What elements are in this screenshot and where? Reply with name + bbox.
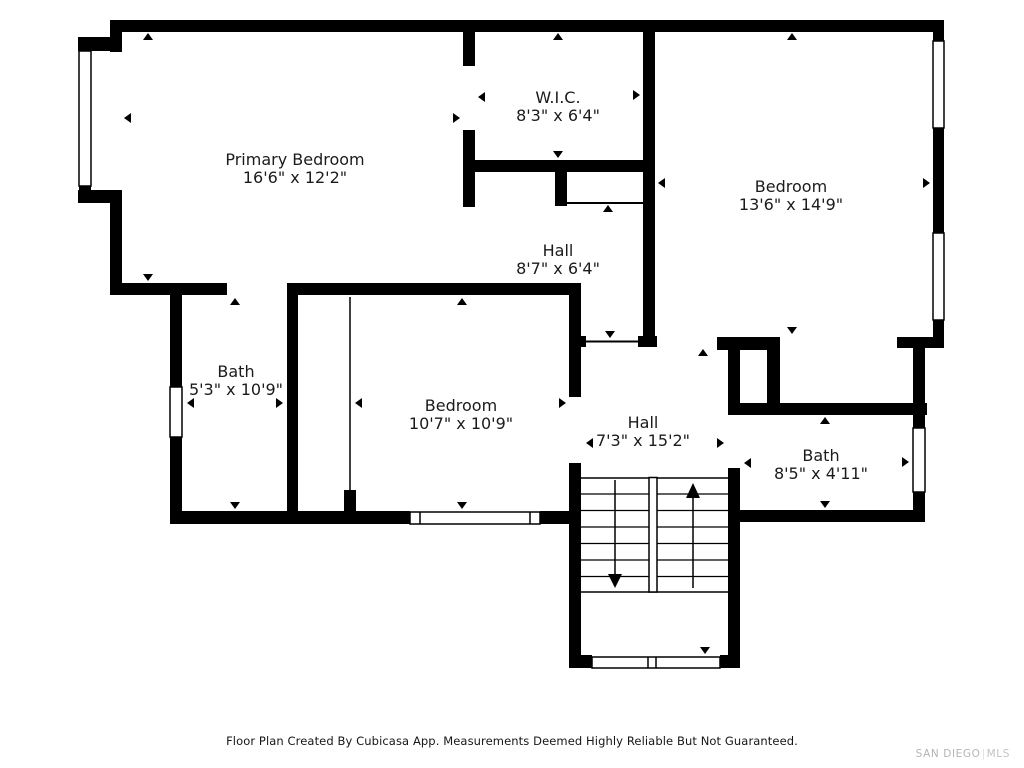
mls-watermark: SAN DIEGO|MLS	[916, 748, 1010, 760]
windows-group	[79, 41, 944, 668]
room-label-wic: W.I.C. 8'3" x 6'4"	[516, 89, 600, 125]
window	[79, 51, 91, 186]
room-name: Primary Bedroom	[225, 151, 364, 169]
room-dims: 8'3" x 6'4"	[516, 107, 600, 125]
room-name: Bath	[774, 447, 868, 465]
floor-plan-page: Primary Bedroom 16'6" x 12'2" W.I.C. 8'3…	[0, 0, 1024, 768]
disclaimer-text: Floor Plan Created By Cubicasa App. Meas…	[0, 734, 1024, 748]
room-label-hall-upper: Hall 8'7" x 6'4"	[516, 242, 600, 278]
watermark-secondary: MLS	[987, 748, 1010, 760]
floorplan-drawing	[0, 0, 1024, 768]
walls-group	[78, 20, 944, 668]
window	[933, 41, 944, 128]
dimension-ticks-group	[124, 33, 930, 654]
room-dims: 8'5" x 4'11"	[774, 465, 868, 483]
room-name: W.I.C.	[516, 89, 600, 107]
room-dims: 5'3" x 10'9"	[189, 381, 283, 399]
room-dims: 10'7" x 10'9"	[409, 415, 513, 433]
room-name: Hall	[596, 414, 690, 432]
room-label-bedroom-right: Bedroom 13'6" x 14'9"	[739, 178, 843, 214]
stairs-down-arrow	[608, 480, 622, 588]
window	[913, 428, 925, 492]
room-dims: 16'6" x 12'2"	[225, 169, 364, 187]
room-dims: 8'7" x 6'4"	[516, 260, 600, 278]
room-label-bath-left: Bath 5'3" x 10'9"	[189, 363, 283, 399]
stairs-group	[581, 478, 728, 593]
room-name: Hall	[516, 242, 600, 260]
window	[170, 387, 182, 437]
room-label-primary-bedroom: Primary Bedroom 16'6" x 12'2"	[225, 151, 364, 187]
room-name: Bedroom	[409, 397, 513, 415]
window	[933, 233, 944, 320]
room-label-bedroom-center: Bedroom 10'7" x 10'9"	[409, 397, 513, 433]
room-label-bath-right: Bath 8'5" x 4'11"	[774, 447, 868, 483]
room-dims: 7'3" x 15'2"	[596, 432, 690, 450]
window	[410, 512, 540, 524]
room-dims: 13'6" x 14'9"	[739, 196, 843, 214]
room-name: Bedroom	[739, 178, 843, 196]
watermark-primary: SAN DIEGO	[916, 748, 981, 760]
room-name: Bath	[189, 363, 283, 381]
room-label-hall-lower: Hall 7'3" x 15'2"	[596, 414, 690, 450]
stairs-up-arrow	[686, 483, 700, 588]
